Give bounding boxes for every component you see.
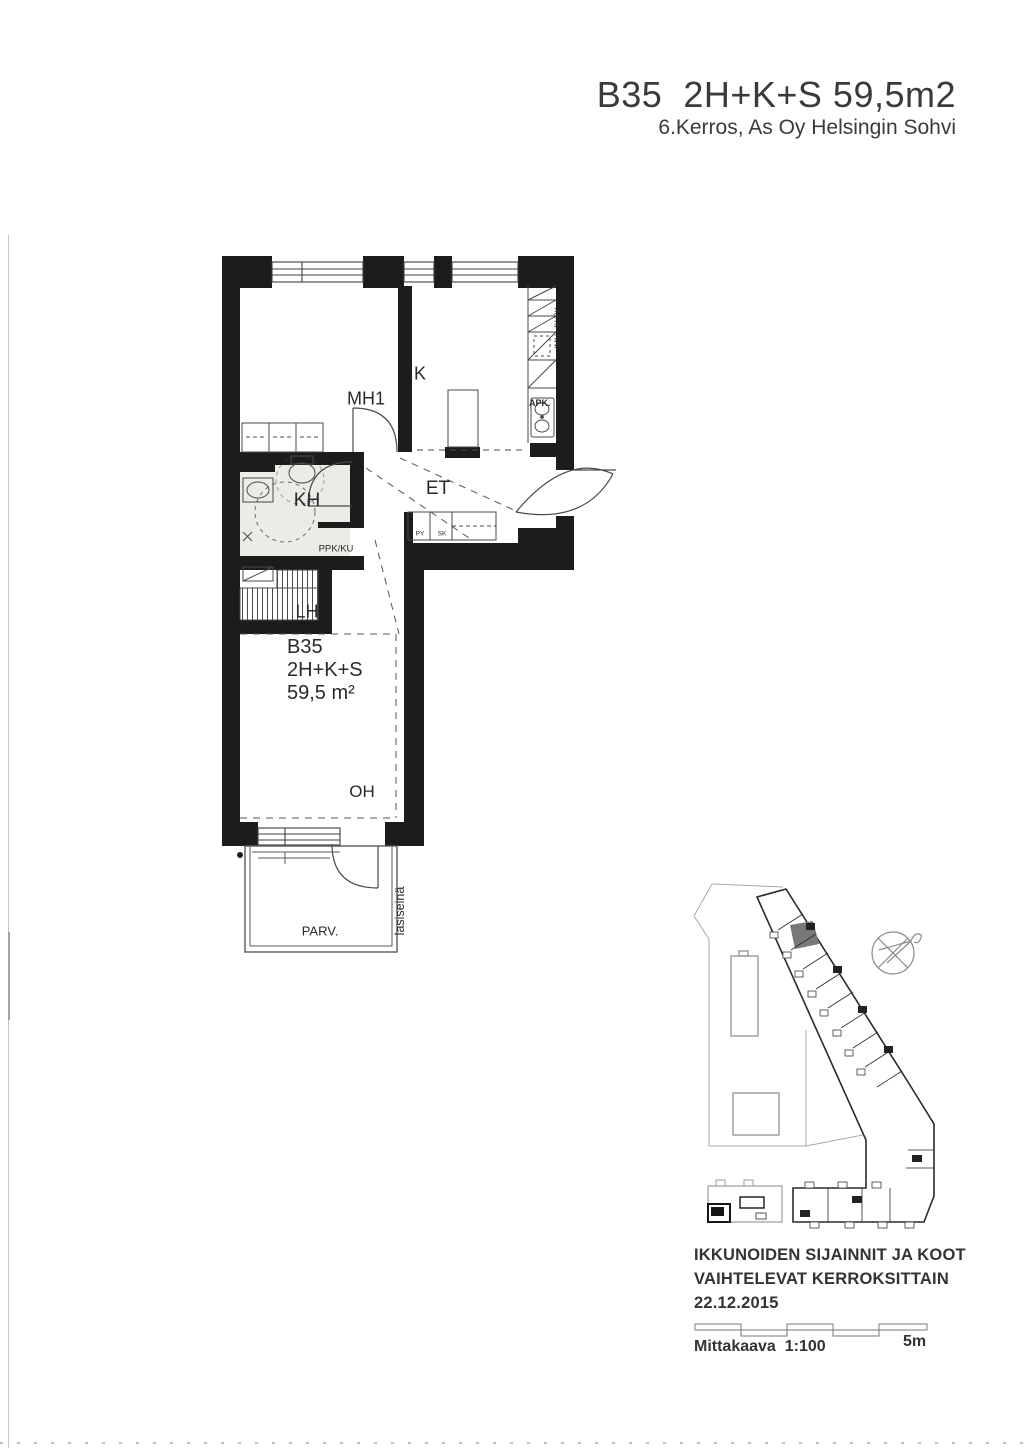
courtyard-structures — [731, 951, 779, 1135]
room-label-oh: OH — [349, 782, 375, 802]
scan-edge-mark — [8, 932, 10, 1020]
site-note: IKKUNOIDEN SIJAINNIT JA KOOT VAIHTELEVAT… — [694, 1243, 966, 1315]
room-label-kh: KH — [294, 490, 320, 512]
kitchen-counter — [528, 286, 556, 443]
fixture-label-jk-pk: (MU) JK/PK — [554, 307, 563, 349]
wardrobe — [242, 423, 323, 452]
compass-icon — [872, 932, 921, 974]
small-building — [708, 1180, 782, 1222]
unit-area: 59,5 m² — [287, 682, 363, 705]
scale-bar — [695, 1324, 927, 1336]
room-label-et: ET — [426, 478, 450, 500]
closet-label-sk: SK — [438, 531, 447, 538]
unit-id: B35 — [287, 636, 363, 659]
page-subtitle: 6.Kerros, As Oy Helsingin Sohvi — [658, 116, 956, 140]
site-note-date: 22.12.2015 — [694, 1291, 966, 1315]
scan-bottom-dots — [0, 1442, 1024, 1444]
room-label-k: K — [414, 364, 426, 385]
fixture-label-apk: APK. — [529, 398, 551, 408]
floorplan-drawing — [0, 0, 1024, 1448]
kitchen-island — [417, 390, 524, 450]
closet-label-py: PY — [416, 531, 425, 538]
room-label-lh: LH — [295, 602, 318, 623]
fixture-label-ppk-ku: PPK/KU — [319, 544, 354, 555]
room-label-mh1: MH1 — [347, 389, 385, 410]
scan-edge-line — [8, 235, 9, 1448]
unit-type: 2H+K+S — [287, 659, 363, 682]
unit-info-block: B35 2H+K+S 59,5 m² — [287, 636, 363, 705]
siteplan-drawing — [694, 884, 934, 1228]
site-note-line2: VAIHTELEVAT KERROKSITTAIN — [694, 1267, 966, 1291]
room-label-parv: PARV. — [302, 924, 339, 939]
scanned-floorplan-page: B35 2H+K+S 59,5m2 6.Kerros, As Oy Helsin… — [0, 0, 1024, 1448]
scale-max-label: 5m — [903, 1333, 926, 1351]
site-note-line1: IKKUNOIDEN SIJAINNIT JA KOOT — [694, 1243, 966, 1267]
glass-wall-label: lasiseinä — [393, 887, 407, 936]
scale-label: Mittakaava 1:100 — [694, 1338, 826, 1356]
page-title: B35 2H+K+S 59,5m2 — [597, 74, 956, 116]
walls — [222, 256, 574, 858]
